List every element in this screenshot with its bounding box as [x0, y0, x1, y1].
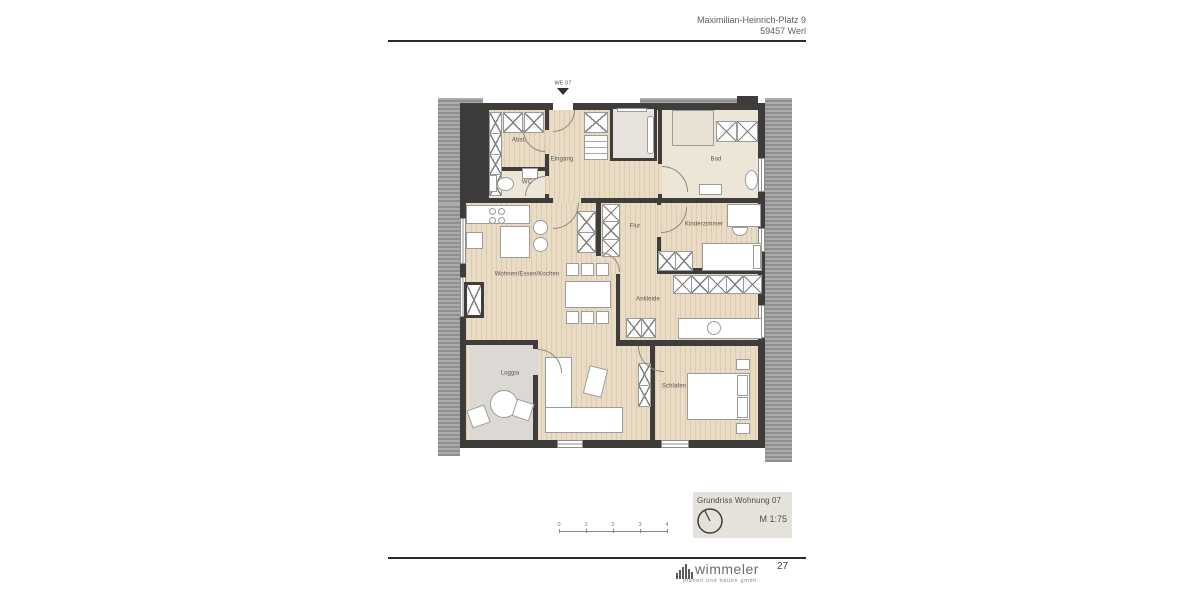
shower-icon: [672, 110, 714, 146]
washing-machine-icon: [716, 121, 737, 142]
room-label-ankleide: Ankleide: [636, 297, 660, 304]
roof-hatch-right: [765, 98, 792, 462]
pillow: [737, 397, 748, 418]
door-opening-abst: [545, 130, 549, 154]
wardrobe-icon: [658, 251, 693, 271]
kitchen-sink-icon: [533, 237, 548, 252]
room-label-wohnen: Wohnen/Essen/Kochen: [495, 272, 560, 279]
window: [758, 158, 765, 192]
entrance-marker-label: WE 07: [554, 81, 571, 88]
wardrobe-icon: [673, 275, 762, 294]
wardrobe-icon: [577, 211, 596, 253]
room-label-abst: Abst.: [512, 138, 526, 145]
door-opening-wc: [545, 176, 549, 194]
shelf-cabinet: [584, 135, 608, 160]
sink-icon: [707, 321, 721, 335]
room-label-flur: Flur: [630, 224, 641, 231]
pillow: [737, 375, 748, 396]
toilet-icon: [497, 177, 514, 191]
room-label-bad: Bad: [711, 157, 722, 164]
scale-bar: 0 1 2 3 4: [540, 520, 680, 538]
shaft-handle: [647, 116, 654, 154]
header-rule: [388, 40, 806, 42]
stove-burner-icon: [498, 208, 505, 215]
toilet-icon: [745, 170, 758, 190]
fridge-icon: [466, 232, 483, 249]
room-label-wc: WC: [522, 180, 532, 187]
wardrobe-icon: [626, 318, 656, 338]
plan-scale: M 1:75: [759, 514, 787, 524]
wall-schlafen-top-a: [616, 340, 640, 346]
window: [557, 440, 583, 448]
north-arrow-icon: [695, 505, 725, 535]
wardrobe-icon: [503, 112, 523, 133]
chimney-block: [737, 96, 758, 104]
footer-rule: [388, 557, 806, 559]
toilet-icon: [489, 175, 497, 192]
chair: [581, 311, 594, 324]
stove-burner-icon: [489, 217, 496, 224]
scale-tick-label: 1: [584, 522, 587, 528]
nightstand: [736, 359, 750, 370]
scale-tick-label: 0: [557, 522, 560, 528]
desk: [727, 204, 761, 227]
document-page: Maximilian-Heinrich-Platz 9 59457 Werl W…: [0, 0, 1200, 600]
nightstand: [736, 423, 750, 434]
chair: [581, 263, 594, 276]
wardrobe-icon: [602, 204, 620, 257]
chair: [566, 311, 579, 324]
room-label-eingang: Eingang: [551, 157, 574, 164]
washing-machine-icon: [737, 121, 758, 142]
room-label-loggia: Loggia: [501, 371, 520, 378]
chimney-icon: [464, 282, 484, 318]
pillow: [753, 245, 761, 269]
title-block: Grundriss Wohnung 07 M 1:75: [693, 492, 792, 538]
sink-icon: [699, 184, 722, 195]
sofa: [545, 407, 623, 433]
chair: [596, 311, 609, 324]
wardrobe-icon: [638, 363, 651, 407]
chair: [566, 263, 579, 276]
address-line-1: Maximilian-Heinrich-Platz 9: [556, 15, 806, 26]
entrance-arrow-icon: [557, 88, 569, 95]
roof-hatch-left: [438, 204, 460, 456]
shaft-fixture: [617, 108, 647, 112]
logo-bars-icon: [676, 563, 693, 579]
address-line-2: 59457 Werl: [556, 26, 806, 37]
plan-title: Grundriss Wohnung 07: [697, 496, 789, 505]
room-label-kinderzimmer: Kinderzimmer: [685, 222, 723, 229]
logo-subtext: planen und bauen gmbh: [683, 578, 757, 584]
scale-tick-label: 2: [611, 522, 614, 528]
dining-table: [565, 281, 611, 308]
page-number: 27: [777, 561, 788, 572]
kitchen-sink-icon: [533, 220, 548, 235]
wall-wohnen-flur: [596, 203, 601, 258]
door-opening-entrance: [553, 103, 573, 110]
kitchen-peninsula: [500, 226, 530, 258]
scale-tick-label: 3: [638, 522, 641, 528]
stove-burner-icon: [489, 208, 496, 215]
header-address: Maximilian-Heinrich-Platz 9 59457 Werl: [556, 15, 806, 37]
scale-tick-label: 4: [665, 522, 668, 528]
stove-burner-icon: [498, 217, 505, 224]
wall-schlafen-top-b: [664, 340, 765, 346]
logo-text: wimmeler: [695, 561, 759, 577]
wardrobe-icon: [584, 112, 608, 133]
room-label-schlafen: Schlafen: [662, 384, 686, 391]
window: [661, 440, 689, 448]
